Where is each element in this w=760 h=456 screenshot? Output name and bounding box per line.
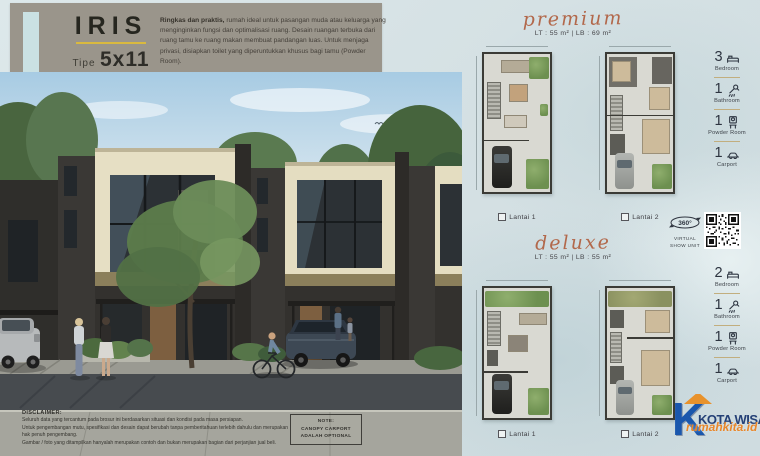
floorplan-stairs	[487, 82, 501, 120]
note-line1: CANOPY CARPORT	[293, 426, 359, 434]
deluxe-heading: deluxe	[473, 230, 673, 255]
disclaimer-line: Untuk pengembangan mutu, spesifikasi dan…	[22, 425, 294, 440]
floorplan-garden	[526, 159, 548, 189]
bathroom-label: Bathroom	[700, 98, 754, 104]
svg-text:360°: 360°	[678, 219, 692, 227]
type-label: Tipe 5x11	[52, 48, 170, 72]
premium-lantai2-floorplan	[605, 52, 675, 194]
lantai1-checkbox[interactable]	[498, 430, 506, 438]
lantai2-checkbox[interactable]	[621, 213, 629, 221]
feature-bedroom: 2 Bedroom	[700, 266, 754, 288]
floorplan-garden	[652, 164, 672, 189]
disclaimer-line: Gambar / foto yang ditampilkan hanyalah …	[22, 440, 294, 448]
deluxe-lantai1-floorplan	[482, 286, 552, 420]
bed-icon	[726, 51, 740, 65]
floorplan-stairs	[610, 332, 623, 363]
floorplan-bathroom	[610, 310, 625, 328]
feature-powder-room: 1 Powder Room	[700, 114, 754, 136]
divider	[714, 293, 740, 294]
bathroom-label: Bathroom	[700, 314, 754, 320]
bedroom-label: Bedroom	[700, 282, 754, 288]
floorplan-wall	[484, 140, 529, 142]
disclaimer: DISCLAIMER: Seluruh data yang tercantum …	[22, 410, 294, 447]
divider	[714, 325, 740, 326]
lantai1-label: Lantai 1	[509, 431, 536, 438]
floorplan-powder-room	[487, 350, 498, 366]
floorplan-garden	[528, 388, 549, 415]
360-icon: 360°	[668, 214, 702, 231]
floorplan-bed	[612, 61, 631, 82]
premium-specs: LT : 55 m² | LB : 69 m²	[473, 30, 673, 37]
divider	[714, 77, 740, 78]
powder-room-count: 1	[714, 330, 722, 345]
floorplan-garden	[485, 291, 548, 308]
floorplan-wall	[607, 115, 673, 117]
accent-stripe	[23, 12, 39, 72]
floorplan-room	[652, 57, 672, 85]
title-underline	[76, 42, 146, 44]
floorplan-bed	[642, 119, 670, 154]
bedroom-count: 2	[714, 266, 722, 281]
floorplan-bed	[649, 87, 671, 110]
floorplan-bathroom	[610, 134, 626, 155]
description-body: rumah ideal untuk pasangan muda atau kel…	[160, 17, 386, 65]
note-box: NOTE: CANOPY CARPORT ADALAH OPTIONAL	[290, 414, 362, 445]
deluxe-lantai1-row: Lantai 1	[482, 430, 552, 438]
powder-room-count: 1	[714, 114, 722, 129]
note-line2: ADALAH OPTIONAL	[293, 433, 359, 441]
premium-heading: premium	[473, 6, 673, 31]
type-value: 5x11	[100, 48, 150, 71]
qr-code	[706, 214, 739, 247]
premium-lantai2-row: Lantai 2	[605, 213, 675, 221]
virtual-show-unit: 360° VIRTUAL SHOW UNIT	[668, 214, 739, 250]
deluxe-lantai2-row: Lantai 2	[605, 430, 675, 438]
disclaimer-line: Seluruh data yang tercantum pada brosur …	[22, 417, 294, 425]
floorplan-car	[492, 374, 512, 414]
bed-icon	[726, 267, 740, 281]
powder-room-label: Powder Room	[700, 346, 754, 352]
description-text: Ringkas dan praktis, rumah ideal untuk p…	[160, 16, 386, 67]
watermark-logo: KOTA WISATA K rumahkita.id	[670, 394, 760, 456]
header-banner: IRIS Tipe 5x11 Ringkas dan praktis, ruma…	[10, 3, 382, 72]
lantai2-label: Lantai 2	[632, 431, 659, 438]
carport-count: 1	[714, 146, 722, 161]
carport-label: Carport	[700, 378, 754, 384]
floorplan-planter	[540, 104, 548, 116]
deluxe-features: 2 Bedroom 1 Bathroom 1	[700, 266, 754, 384]
floorplan-dining-table	[508, 335, 528, 353]
divider	[714, 141, 740, 142]
roof-icon	[684, 394, 712, 404]
360-badge: 360° VIRTUAL SHOW UNIT	[668, 214, 702, 250]
premium-lantai1-floorplan	[482, 52, 552, 194]
floorplan-carport	[616, 380, 634, 415]
suv-right	[282, 320, 358, 369]
lantai1-checkbox[interactable]	[498, 213, 506, 221]
page-title: IRIS	[52, 14, 170, 39]
disclaimer-title: DISCLAIMER:	[22, 410, 294, 416]
bedroom-count: 3	[714, 50, 722, 65]
floorplan-stairs	[487, 311, 501, 346]
carport-count: 1	[714, 362, 722, 377]
floorplan-car	[492, 146, 512, 187]
deluxe-lantai2-floorplan	[605, 286, 675, 420]
floorplan-carport	[615, 153, 634, 189]
description-lead: Ringkas dan praktis,	[160, 17, 225, 24]
brochure-page: IRIS Tipe 5x11 Ringkas dan praktis, ruma…	[0, 0, 760, 456]
townhouse-render	[0, 72, 462, 456]
deluxe-specs: LT : 55 m² | LB : 55 m²	[473, 254, 673, 261]
feature-powder-room: 1 Powder Room	[700, 330, 754, 352]
floorplan-dining-table	[509, 84, 528, 101]
lantai2-label: Lantai 2	[632, 214, 659, 221]
floorplan-garden	[652, 395, 672, 416]
floorplan-stairs	[610, 95, 623, 130]
lantai2-checkbox[interactable]	[621, 430, 629, 438]
divider	[714, 357, 740, 358]
feature-carport: 1 Carport	[700, 362, 754, 384]
car-icon	[726, 363, 740, 377]
watermark-site: rumahkita.id	[686, 420, 757, 434]
floorplan-bed	[641, 350, 671, 386]
floorplan-roof-garden	[608, 291, 671, 308]
floorplan-wall	[627, 337, 673, 339]
carport-label: Carport	[700, 162, 754, 168]
divider	[714, 109, 740, 110]
floorplan-bed	[645, 310, 671, 333]
floorplan-kitchen	[501, 60, 532, 73]
floorplan-garden	[529, 57, 549, 79]
car-icon	[726, 147, 740, 161]
bathroom-count: 1	[714, 82, 722, 97]
powder-room-label: Powder Room	[700, 130, 754, 136]
shower-icon	[726, 299, 740, 313]
premium-features: 3 Bedroom 1 Bathroom 1	[700, 50, 754, 168]
floorplan-kitchen	[519, 313, 547, 325]
feature-bedroom: 3 Bedroom	[700, 50, 754, 72]
shower-icon	[726, 83, 740, 97]
vsu-line1: VIRTUAL	[668, 236, 702, 243]
bedroom-label: Bedroom	[700, 66, 754, 72]
washstand-icon	[726, 115, 740, 129]
lantai1-label: Lantai 1	[509, 214, 536, 221]
type-prefix: Tipe	[72, 58, 95, 69]
title-block: IRIS Tipe 5x11	[52, 14, 170, 72]
feature-bathroom: 1 Bathroom	[700, 82, 754, 104]
feature-bathroom: 1 Bathroom	[700, 298, 754, 320]
premium-lantai1-row: Lantai 1	[482, 213, 552, 221]
bathroom-count: 1	[714, 298, 722, 313]
feature-carport: 1 Carport	[700, 146, 754, 168]
washstand-icon	[726, 331, 740, 345]
floorplan-sofa	[504, 115, 527, 128]
floorplan-wall	[484, 371, 528, 373]
note-title: NOTE:	[293, 418, 359, 426]
